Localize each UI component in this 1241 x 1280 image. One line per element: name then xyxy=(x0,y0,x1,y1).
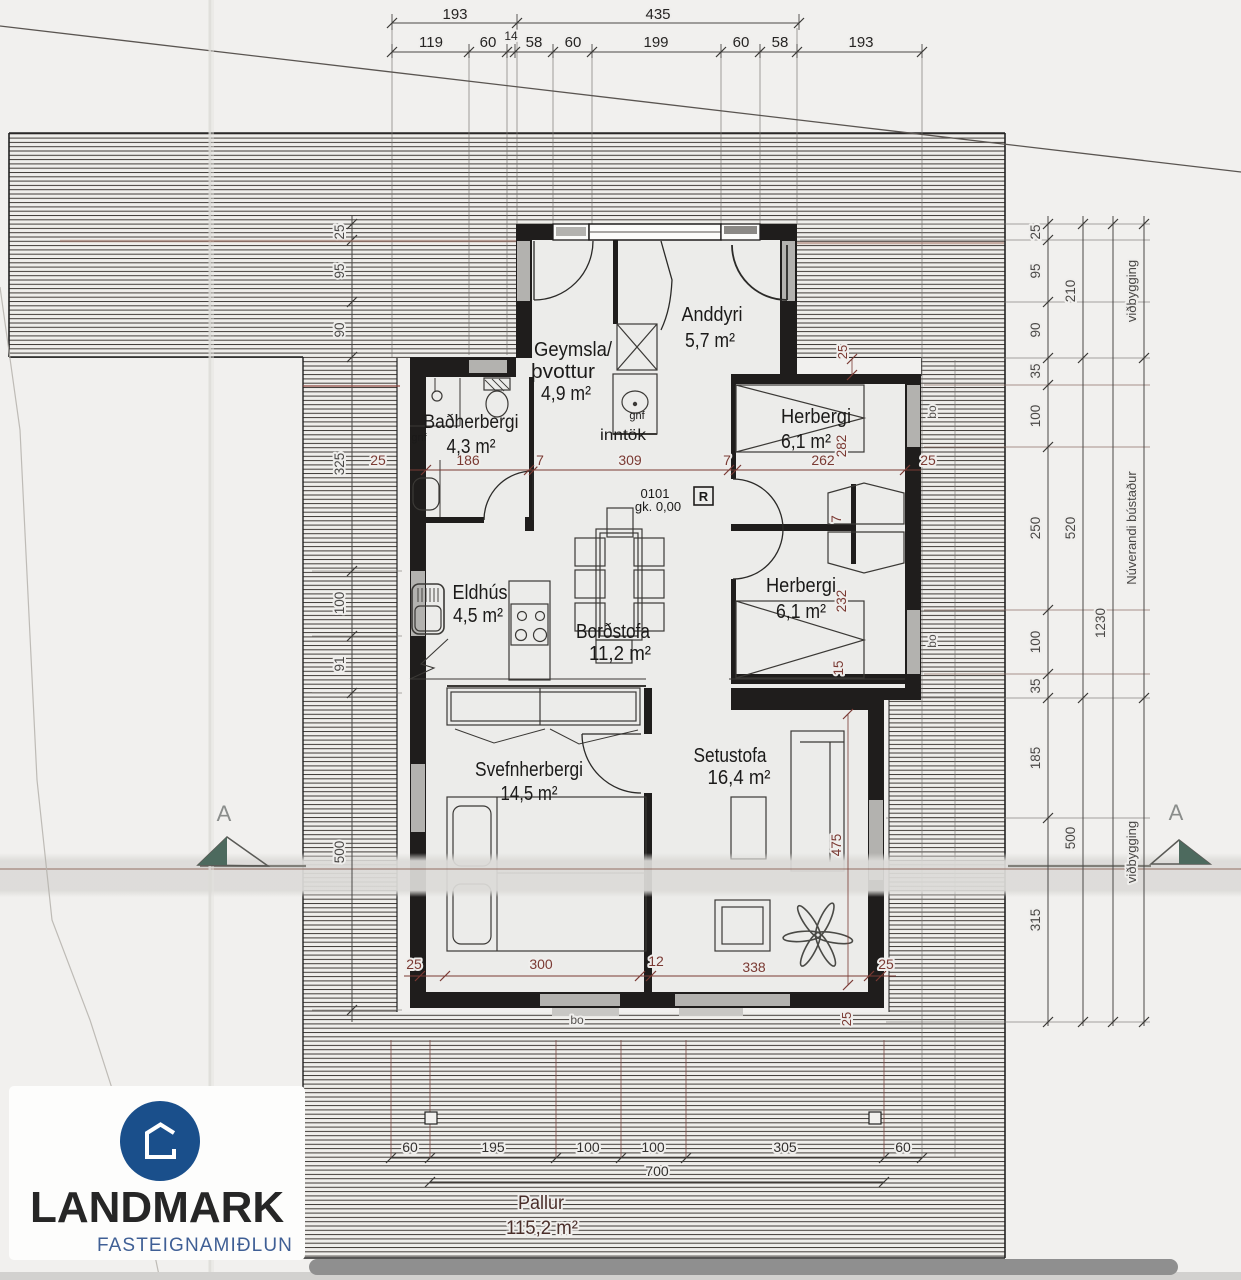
svg-text:325: 325 xyxy=(332,453,347,476)
svg-text:6,1 m²: 6,1 m² xyxy=(781,431,831,453)
svg-text:199: 199 xyxy=(643,34,668,51)
svg-text:15: 15 xyxy=(831,660,846,675)
svg-text:14: 14 xyxy=(504,29,518,43)
svg-text:inntök: inntök xyxy=(600,427,647,444)
svg-text:þvottur: þvottur xyxy=(531,361,595,383)
svg-text:1230: 1230 xyxy=(1093,608,1108,638)
svg-text:11,2 m²: 11,2 m² xyxy=(589,643,651,665)
svg-text:viðbygging: viðbygging xyxy=(1124,821,1139,883)
svg-text:262: 262 xyxy=(811,452,835,468)
svg-text:100: 100 xyxy=(1028,631,1043,654)
svg-text:90: 90 xyxy=(332,322,347,337)
svg-text:700: 700 xyxy=(645,1163,669,1179)
svg-text:60: 60 xyxy=(895,1139,911,1155)
svg-text:232: 232 xyxy=(834,590,849,613)
svg-text:119: 119 xyxy=(419,34,443,51)
svg-text:Geymsla/: Geymsla/ xyxy=(534,339,612,361)
svg-text:60: 60 xyxy=(565,34,582,51)
svg-text:16,4 m²: 16,4 m² xyxy=(708,767,771,789)
svg-text:25: 25 xyxy=(370,452,386,468)
svg-text:Svefnherbergi: Svefnherbergi xyxy=(475,759,583,781)
svg-text:Setustofa: Setustofa xyxy=(694,745,768,767)
svg-text:282: 282 xyxy=(834,435,849,458)
svg-text:60: 60 xyxy=(733,34,750,51)
svg-text:4,9 m²: 4,9 m² xyxy=(541,383,591,405)
svg-text:6,1 m²: 6,1 m² xyxy=(776,601,826,623)
svg-text:35: 35 xyxy=(1028,363,1043,378)
svg-text:91: 91 xyxy=(332,656,347,671)
svg-text:7: 7 xyxy=(536,452,544,468)
svg-text:500: 500 xyxy=(332,841,347,864)
svg-text:60: 60 xyxy=(402,1139,418,1155)
svg-text:25: 25 xyxy=(1028,224,1043,239)
svg-text:12: 12 xyxy=(648,953,664,969)
svg-text:Eldhús: Eldhús xyxy=(453,582,508,604)
svg-text:Herbergi: Herbergi xyxy=(781,406,851,428)
svg-text:Núverandi bústaður: Núverandi bústaður xyxy=(1124,471,1139,585)
svg-text:500: 500 xyxy=(1063,827,1078,850)
svg-text:100: 100 xyxy=(641,1139,665,1155)
svg-text:475: 475 xyxy=(829,834,844,857)
svg-text:100: 100 xyxy=(1028,405,1043,428)
svg-text:Anddyri: Anddyri xyxy=(682,304,743,326)
svg-text:gnf: gnf xyxy=(411,432,427,444)
svg-text:gnf: gnf xyxy=(629,410,645,422)
svg-text:4,3 m²: 4,3 m² xyxy=(447,436,496,458)
svg-text:4,5 m²: 4,5 m² xyxy=(453,605,503,627)
svg-text:58: 58 xyxy=(526,34,543,51)
svg-text:305: 305 xyxy=(773,1139,797,1155)
svg-text:14,5 m²: 14,5 m² xyxy=(501,783,558,805)
svg-text:60: 60 xyxy=(480,34,497,51)
svg-text:193: 193 xyxy=(848,34,873,51)
svg-text:520: 520 xyxy=(1063,517,1078,540)
svg-text:LANDMARK: LANDMARK xyxy=(30,1183,284,1232)
svg-text:100: 100 xyxy=(332,592,347,615)
svg-text:25: 25 xyxy=(920,452,936,468)
svg-text:95: 95 xyxy=(332,263,347,278)
svg-text:309: 309 xyxy=(618,452,642,468)
svg-text:25: 25 xyxy=(835,345,850,359)
svg-text:185: 185 xyxy=(1028,747,1043,770)
svg-text:115,2 m²: 115,2 m² xyxy=(506,1218,578,1239)
svg-text:95: 95 xyxy=(1028,263,1043,278)
svg-text:A: A xyxy=(217,801,232,826)
svg-text:193: 193 xyxy=(442,6,467,23)
svg-text:90: 90 xyxy=(1028,322,1043,337)
svg-text:bo: bo xyxy=(925,634,939,648)
svg-text:35: 35 xyxy=(1028,678,1043,693)
svg-text:250: 250 xyxy=(1028,517,1043,540)
svg-text:A: A xyxy=(1169,800,1184,825)
svg-text:25: 25 xyxy=(839,1012,854,1026)
svg-text:bo: bo xyxy=(570,1013,584,1027)
svg-text:435: 435 xyxy=(645,6,670,23)
svg-text:R: R xyxy=(699,489,709,504)
svg-text:viðbygging: viðbygging xyxy=(1124,260,1139,322)
svg-text:bo: bo xyxy=(925,405,939,419)
svg-text:338: 338 xyxy=(742,959,766,975)
svg-text:25: 25 xyxy=(332,224,347,239)
svg-text:Pallur: Pallur xyxy=(518,1193,565,1214)
svg-text:Borðstofa: Borðstofa xyxy=(576,621,651,643)
svg-text:210: 210 xyxy=(1063,280,1078,303)
svg-text:5,7 m²: 5,7 m² xyxy=(685,330,735,352)
svg-text:Herbergi: Herbergi xyxy=(766,575,836,597)
svg-text:58: 58 xyxy=(772,34,789,51)
svg-text:25: 25 xyxy=(878,956,894,972)
svg-text:7: 7 xyxy=(829,515,844,523)
svg-text:300: 300 xyxy=(529,956,553,972)
svg-text:25: 25 xyxy=(406,956,422,972)
svg-text:gk. 0,00: gk. 0,00 xyxy=(635,499,681,514)
svg-text:100: 100 xyxy=(576,1139,600,1155)
svg-text:FASTEIGNAMIÐLUN: FASTEIGNAMIÐLUN xyxy=(97,1235,293,1256)
svg-text:7: 7 xyxy=(723,452,731,468)
svg-text:195: 195 xyxy=(481,1139,505,1155)
svg-text:315: 315 xyxy=(1028,909,1043,932)
svg-text:Baðherbergi: Baðherbergi xyxy=(424,412,519,433)
